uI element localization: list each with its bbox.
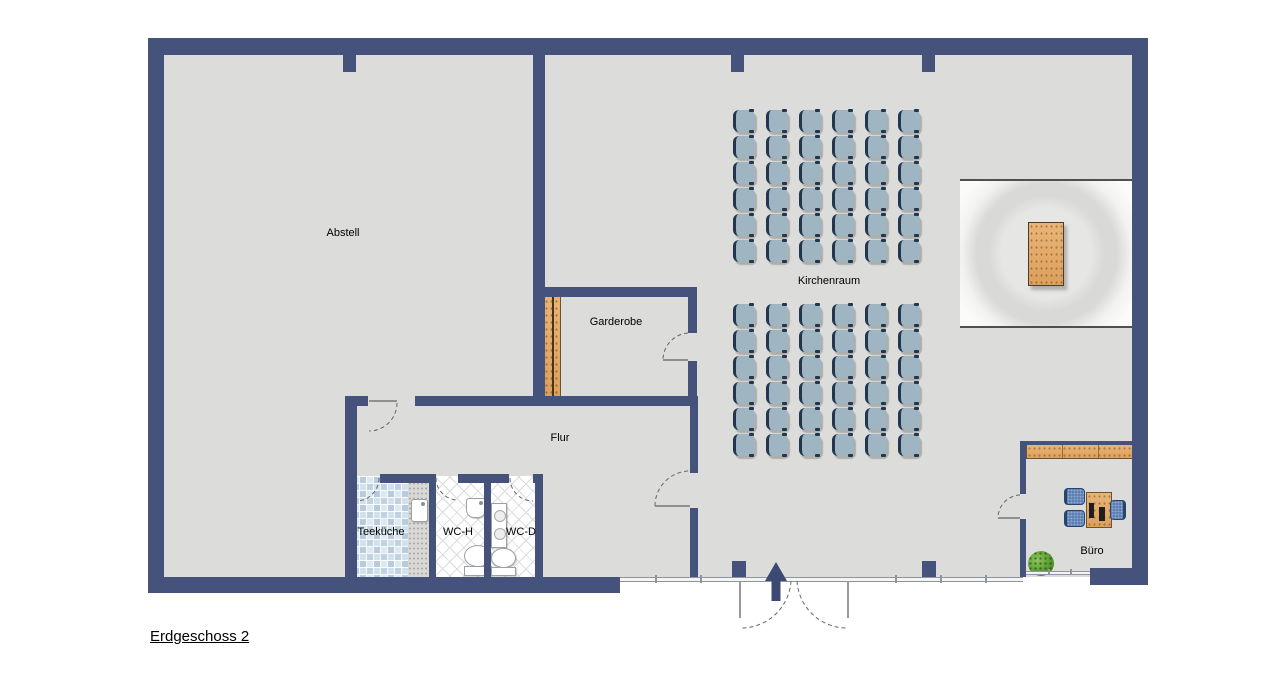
room-label-abstell: Abstell bbox=[326, 227, 359, 239]
door-arc-wc-d bbox=[510, 478, 533, 501]
room-label-kirchenraum: Kirchenraum bbox=[798, 275, 860, 287]
room-label-wc-h: WC-H bbox=[443, 526, 473, 538]
entrance-arrow-icon bbox=[765, 562, 787, 601]
door-arc-garderobe bbox=[663, 333, 688, 360]
room-label-flur: Flur bbox=[551, 432, 570, 444]
entrance-door-arc bbox=[741, 581, 791, 628]
door-arc-buero bbox=[998, 495, 1020, 518]
room-label-buero: Büro bbox=[1080, 545, 1103, 557]
room-label-garderobe: Garderobe bbox=[590, 316, 643, 328]
page-title: Erdgeschoss 2 bbox=[150, 628, 249, 645]
room-label-teekueche: Teeküche bbox=[357, 526, 404, 538]
floor-plan: Abstell Garderobe Flur Teeküche WC-H WC-… bbox=[0, 0, 1279, 676]
door-arc-wc-h bbox=[436, 478, 458, 500]
door-overlay bbox=[0, 0, 1279, 676]
entrance-door-arc bbox=[797, 581, 847, 628]
room-label-wc-d: WC-D bbox=[506, 526, 536, 538]
door-arc-teekueche bbox=[356, 478, 379, 501]
door-arc-abstell bbox=[369, 403, 397, 431]
door-arc-kirchenraum bbox=[655, 471, 690, 506]
